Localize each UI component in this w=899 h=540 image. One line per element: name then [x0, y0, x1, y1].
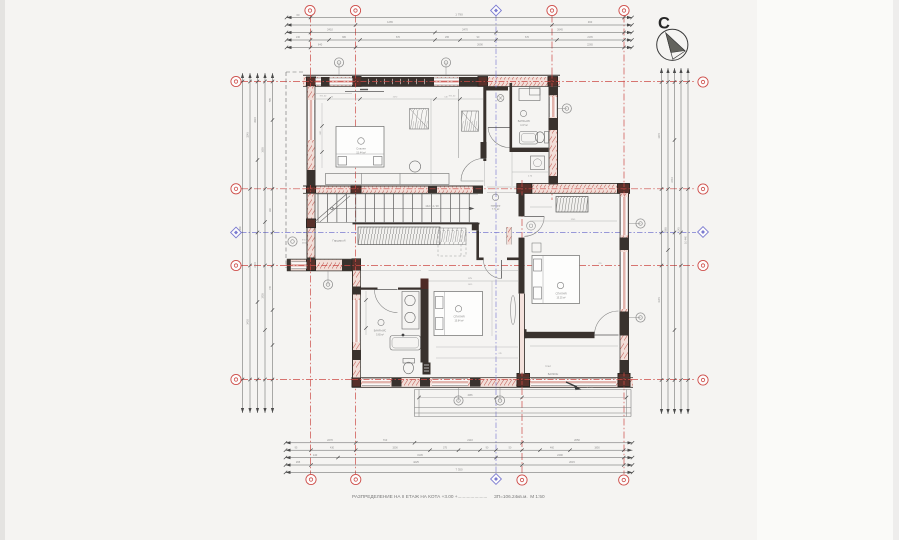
svg-text:2490: 2490: [557, 453, 563, 457]
svg-text:ПГ1.60: ПГ1.60: [320, 96, 327, 98]
svg-text:1655: 1655: [262, 147, 265, 153]
svg-text:Гардероб: Гардероб: [332, 239, 345, 243]
svg-text:2410: 2410: [327, 28, 333, 32]
svg-text:1 790: 1 790: [455, 13, 463, 17]
svg-text:295: 295: [445, 36, 450, 39]
svg-text:СПАЛНЯ: СПАЛНЯ: [556, 292, 567, 296]
svg-text:2620: 2620: [254, 117, 257, 123]
svg-text:15.44 м²: 15.44 м²: [356, 152, 366, 155]
svg-text:140: 140: [313, 453, 318, 457]
svg-text:1070: 1070: [658, 133, 661, 139]
svg-text:БАНЯ+WC: БАНЯ+WC: [518, 120, 531, 123]
svg-text:4225: 4225: [413, 460, 419, 464]
svg-text:СПАЛНЯ: СПАЛНЯ: [454, 315, 465, 319]
svg-text:710: 710: [383, 438, 388, 442]
svg-text:БАЛКОН: БАЛКОН: [548, 372, 559, 376]
svg-text:2120: 2120: [254, 262, 257, 268]
svg-text:ТР.ЕЛ: ТР.ЕЛ: [545, 366, 551, 368]
svg-text:2110: 2110: [467, 438, 473, 442]
svg-text:4065: 4065: [467, 395, 473, 397]
svg-text:870: 870: [396, 36, 401, 39]
svg-text:240: 240: [296, 36, 301, 39]
svg-text:5.65 м²: 5.65 м²: [376, 334, 384, 337]
svg-text:295: 295: [296, 460, 301, 464]
svg-text:1850: 1850: [594, 446, 600, 449]
svg-text:Спалня: Спалня: [356, 147, 366, 151]
svg-text:7.70 м²: 7.70 м²: [492, 208, 500, 211]
svg-text:и 2.0%: и 2.0%: [587, 387, 594, 389]
svg-text:3145: 3145: [417, 453, 423, 457]
svg-text:15.84 м²: 15.84 м²: [454, 320, 463, 323]
svg-text:2270: 2270: [327, 438, 333, 442]
svg-text:1935: 1935: [262, 293, 265, 299]
svg-text:3145: 3145: [658, 297, 661, 303]
svg-text:2015: 2015: [569, 460, 575, 464]
svg-text:ПГ1.60: ПГ1.60: [449, 96, 456, 98]
svg-text:коридор: коридор: [491, 205, 501, 208]
svg-text:2645: 2645: [557, 28, 563, 32]
svg-text:380: 380: [342, 36, 347, 39]
svg-text:2470: 2470: [462, 28, 468, 32]
svg-text:430: 430: [330, 446, 335, 449]
svg-text:1265: 1265: [387, 20, 393, 24]
svg-text:2265: 2265: [587, 43, 593, 47]
svg-text:640: 640: [318, 43, 323, 47]
svg-text:2440: 2440: [671, 177, 674, 183]
svg-text:РАЗПРЕДЕЛЕНИЕ НА II ЕТАЖ НА КО: РАЗПРЕДЕЛЕНИЕ НА II ЕТАЖ НА КОТА +3.00 +…: [352, 494, 545, 499]
svg-text:3430: 3430: [247, 319, 250, 325]
svg-text:1500: 1500: [392, 446, 398, 449]
svg-text:670: 670: [525, 36, 530, 39]
svg-text:7 350: 7 350: [456, 467, 463, 471]
svg-text:16x17.2 / 28: 16x17.2 / 28: [425, 205, 439, 208]
svg-text:БАНЯ+WC: БАНЯ+WC: [374, 330, 387, 333]
svg-text:3245: 3245: [247, 132, 250, 138]
svg-text:460: 460: [550, 446, 555, 449]
svg-text:4365: 4365: [665, 227, 668, 233]
svg-text:1145: 1145: [678, 227, 681, 233]
svg-text:4.47 м²: 4.47 м²: [520, 124, 528, 127]
svg-text:460: 460: [588, 20, 593, 24]
svg-text:10 440: 10 440: [685, 236, 688, 244]
svg-text:2690: 2690: [477, 43, 483, 47]
svg-text:15.25 м²: 15.25 м²: [556, 297, 565, 300]
svg-text:375: 375: [443, 446, 448, 449]
svg-text:2135: 2135: [587, 36, 593, 39]
svg-text:2050: 2050: [574, 438, 580, 442]
svg-text:Ф 1700: Ф 1700: [302, 239, 310, 242]
